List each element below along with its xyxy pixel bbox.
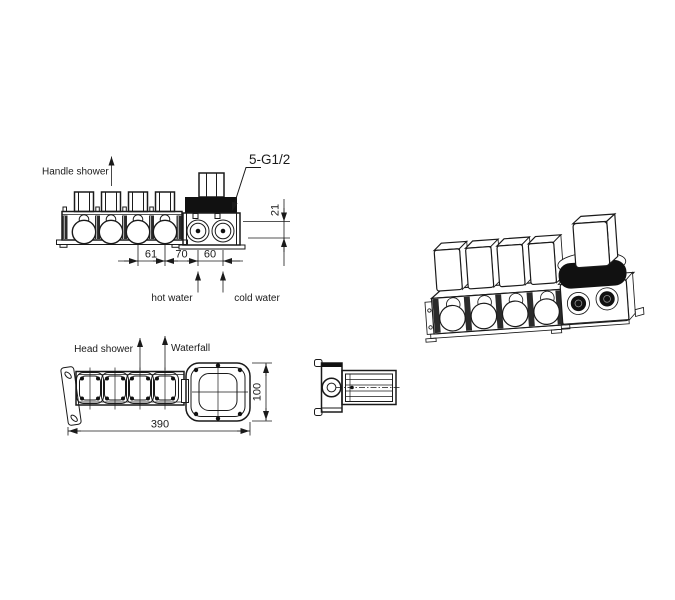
rail-unit-connector bbox=[182, 380, 189, 403]
dim-70-value: 70 bbox=[175, 249, 187, 261]
thread-spec-label: 5-G1/2 bbox=[249, 152, 290, 167]
head-shower-label: Head shower bbox=[74, 344, 134, 355]
hot-water-port bbox=[187, 220, 209, 242]
isometric-view bbox=[418, 212, 645, 342]
dim-21: 21 bbox=[243, 199, 290, 266]
valve-bodies-plan bbox=[77, 368, 179, 410]
cold-water-port bbox=[212, 220, 234, 242]
dim-21-value: 21 bbox=[270, 204, 282, 216]
handle-shower-label: Handle shower bbox=[42, 167, 109, 178]
plan-view: Head shower Waterfall bbox=[61, 336, 272, 436]
dim-100-value: 100 bbox=[252, 383, 264, 401]
thermostatic-unit-front bbox=[179, 173, 245, 249]
cartridge-caps-front bbox=[75, 192, 175, 212]
hot-water-label: hot water bbox=[151, 293, 193, 304]
dim-390-value: 390 bbox=[151, 419, 169, 431]
dim-100: 100 bbox=[252, 363, 273, 421]
front-view: Handle shower bbox=[42, 152, 290, 304]
thermo-cap bbox=[199, 173, 224, 197]
waterfall-label: Waterfall bbox=[171, 343, 210, 354]
thermo-collar-band bbox=[185, 197, 237, 213]
dim-61-value: 61 bbox=[145, 249, 157, 261]
dim-chain-61-70-60: 61 70 60 bbox=[118, 244, 243, 266]
technical-drawing-page: Handle shower bbox=[0, 0, 675, 600]
iso-thermo-cap bbox=[573, 221, 610, 267]
dim-60-value: 60 bbox=[204, 249, 216, 261]
side-view bbox=[315, 360, 401, 416]
thermostatic-unit-plan bbox=[186, 363, 250, 421]
cold-water-label: cold water bbox=[234, 293, 280, 304]
shower-valve-drawing: Handle shower bbox=[0, 0, 675, 600]
iso-thermostatic-unit bbox=[554, 212, 645, 328]
